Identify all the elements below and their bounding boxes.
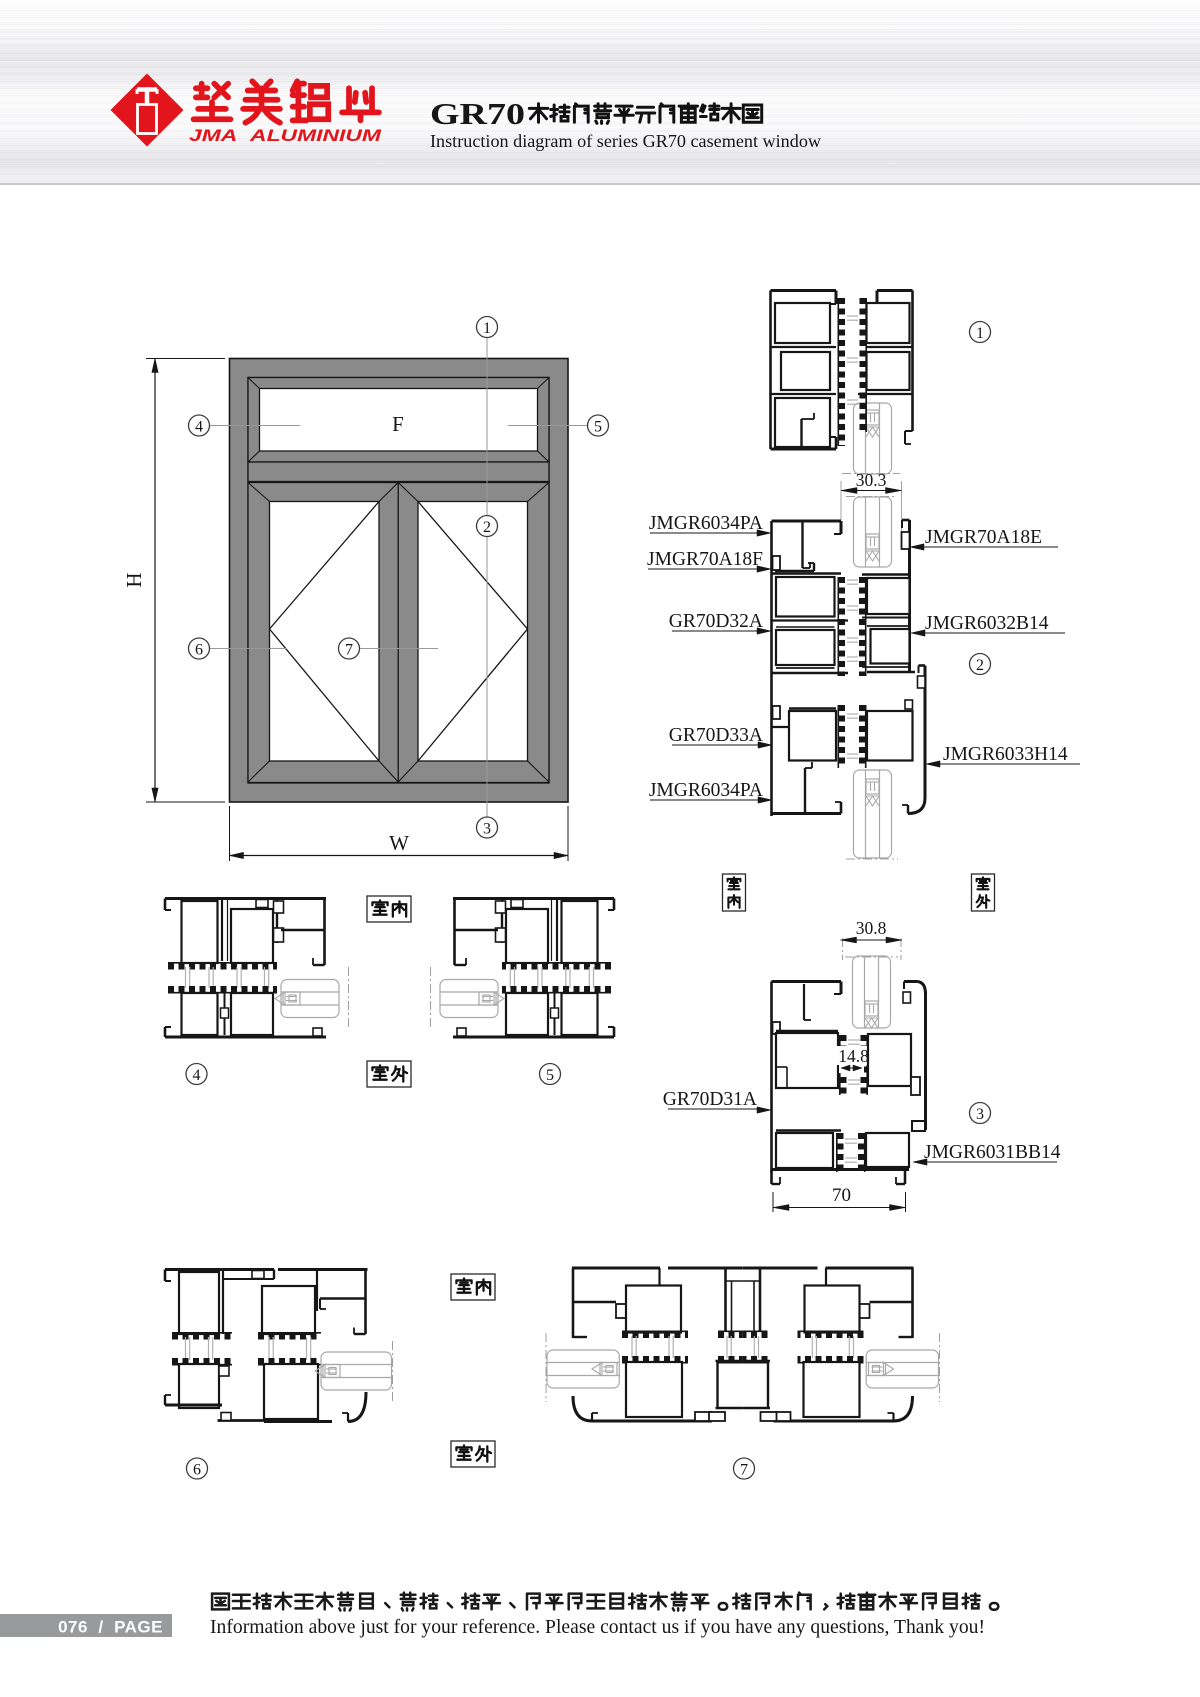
- svg-text:JMGR6034PA: JMGR6034PA: [649, 513, 763, 534]
- svg-text:14.8: 14.8: [838, 1046, 869, 1066]
- svg-text:1: 1: [976, 325, 984, 342]
- svg-text:2: 2: [483, 519, 491, 536]
- svg-text:JMA ALUMINIUM: JMA ALUMINIUM: [189, 127, 383, 145]
- svg-text:5: 5: [546, 1067, 554, 1084]
- svg-text:3: 3: [976, 1106, 984, 1123]
- svg-text:Information above just for you: Information above just for your referenc…: [210, 1617, 985, 1638]
- svg-text:JMGR6031BB14: JMGR6031BB14: [924, 1142, 1061, 1163]
- svg-text:6: 6: [193, 1461, 201, 1478]
- svg-text:GR70D31A: GR70D31A: [663, 1089, 757, 1110]
- svg-text:GR70D33A: GR70D33A: [669, 725, 763, 746]
- svg-text:JMGR6034PA: JMGR6034PA: [649, 780, 763, 801]
- svg-text:5: 5: [594, 418, 602, 435]
- svg-text:30.3: 30.3: [856, 470, 887, 490]
- svg-text:1: 1: [483, 320, 491, 337]
- svg-text:JMGR70A18F: JMGR70A18F: [647, 549, 763, 570]
- svg-text:H: H: [122, 572, 146, 587]
- svg-text:7: 7: [345, 641, 353, 658]
- svg-text:JMGR6033H14: JMGR6033H14: [943, 744, 1068, 765]
- svg-text:W: W: [389, 831, 409, 855]
- svg-text:3: 3: [483, 820, 491, 837]
- svg-text:GR70D32A: GR70D32A: [669, 611, 763, 632]
- svg-text:F: F: [392, 412, 404, 436]
- svg-text:4: 4: [193, 1067, 201, 1084]
- svg-text:GR70: GR70: [430, 96, 525, 131]
- svg-text:Instruction diagram of series: Instruction diagram of series GR70 casem…: [430, 131, 821, 151]
- svg-text:2: 2: [976, 657, 984, 674]
- svg-text:JMGR6032B14: JMGR6032B14: [925, 613, 1049, 634]
- svg-text:70: 70: [832, 1185, 851, 1206]
- svg-text:JMGR70A18E: JMGR70A18E: [925, 527, 1042, 548]
- svg-text:076 / PAGE: 076 / PAGE: [58, 1618, 163, 1637]
- svg-text:6: 6: [195, 641, 203, 658]
- svg-text:7: 7: [740, 1461, 748, 1478]
- svg-text:4: 4: [195, 418, 203, 435]
- svg-text:30.8: 30.8: [856, 918, 887, 938]
